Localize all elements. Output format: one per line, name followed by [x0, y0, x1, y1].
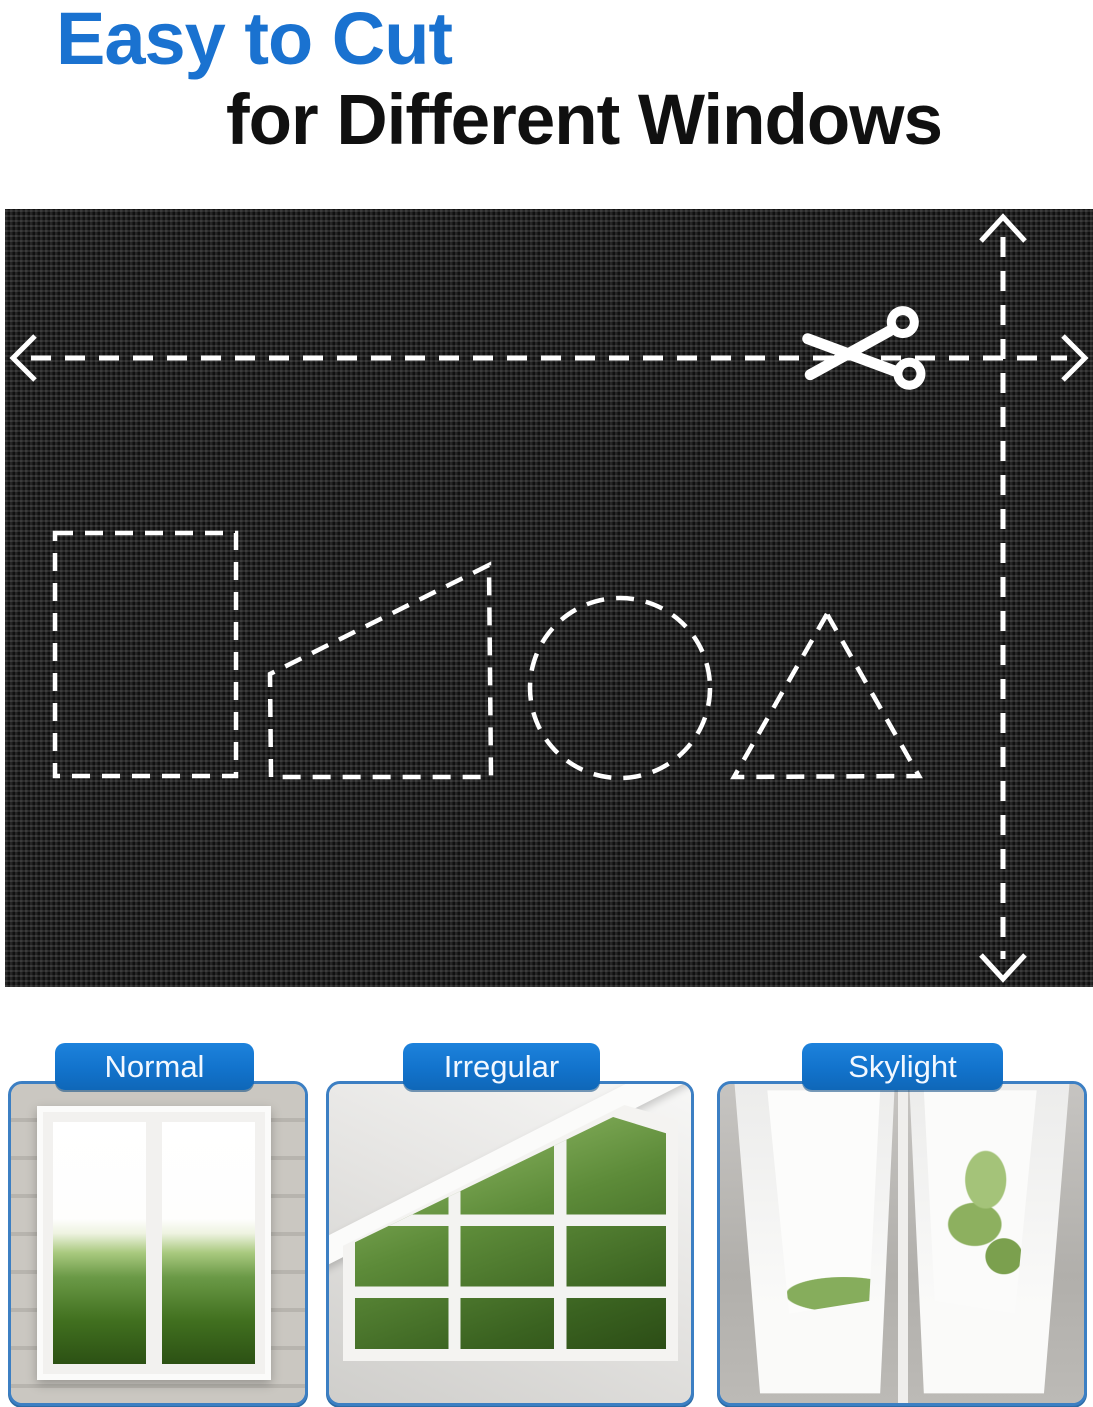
cut-guide-triangle-icon [734, 614, 919, 777]
headline-line1: Easy to Cut [56, 0, 452, 81]
badge-label: Irregular [444, 1049, 559, 1085]
irregular-window-photo [329, 1084, 691, 1403]
skylight-center-divider [898, 1084, 908, 1403]
label-badge-irregular: Irregular [403, 1043, 600, 1090]
product-infographic: Easy to Cut for Different Windows [0, 0, 1093, 1407]
badge-label: Skylight [848, 1049, 957, 1085]
label-badge-normal: Normal [55, 1043, 254, 1090]
cut-guide-rectangle-icon [55, 533, 236, 776]
headline-line2: for Different Windows [226, 80, 942, 161]
cut-guide-circle-icon [530, 598, 710, 778]
vertical-cut-arrow [981, 217, 1025, 979]
badge-label: Normal [105, 1049, 205, 1085]
cut-guides-overlay [5, 209, 1093, 987]
blackout-fabric-panel [5, 209, 1093, 987]
label-badge-skylight: Skylight [802, 1043, 1003, 1090]
window-card-skylight [717, 1081, 1087, 1406]
normal-window-photo [11, 1084, 305, 1403]
cut-guide-trapezoid-icon [270, 565, 491, 777]
window-pane-right [162, 1122, 255, 1364]
window-card-irregular [326, 1081, 694, 1406]
window-pane-left [53, 1122, 146, 1364]
skylight-window-photo [720, 1084, 1084, 1403]
scissors-icon [806, 310, 921, 393]
window-card-normal [8, 1081, 308, 1406]
window-frame [37, 1106, 271, 1380]
